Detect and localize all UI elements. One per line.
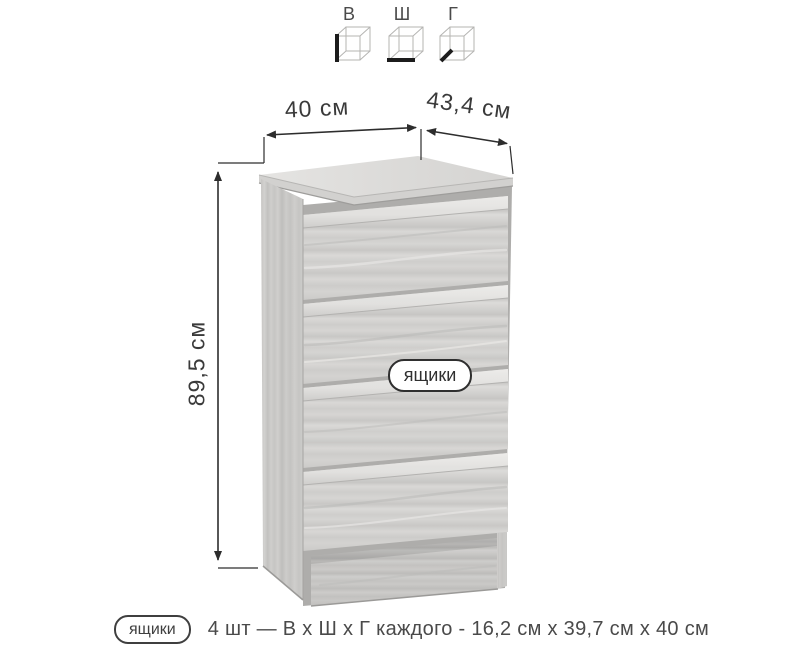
drawers-callout: ящики xyxy=(388,359,472,392)
footer-drawers-badge: ящики xyxy=(114,615,191,644)
depth-dimension-arrow xyxy=(427,131,507,144)
depth-cube-icon xyxy=(440,27,474,61)
height-dimension-label: 89,5 см xyxy=(184,314,211,414)
dresser-illustration xyxy=(259,156,513,606)
footer-drawers-description: 4 шт — В х Ш х Г каждого - 16,2 см х 39,… xyxy=(208,618,709,641)
height-cube-icon xyxy=(336,27,370,62)
width-cube-label: Ш xyxy=(390,4,414,25)
width-cube-icon xyxy=(387,27,423,60)
depth-cube-label: Г xyxy=(441,4,465,25)
footer-caption: ящики 4 шт — В х Ш х Г каждого - 16,2 см… xyxy=(114,615,709,644)
width-dimension-label: 40 см xyxy=(261,92,372,125)
width-dimension-arrow xyxy=(267,128,416,136)
diagram-graphics xyxy=(0,0,800,651)
dresser-right-foot xyxy=(497,532,507,589)
height-cube-label: В xyxy=(337,4,361,25)
dresser-side-panel xyxy=(261,179,303,600)
product-dimensions-diagram: В Ш Г 40 см 43,4 см 89,5 см ящики ящики … xyxy=(0,0,800,651)
